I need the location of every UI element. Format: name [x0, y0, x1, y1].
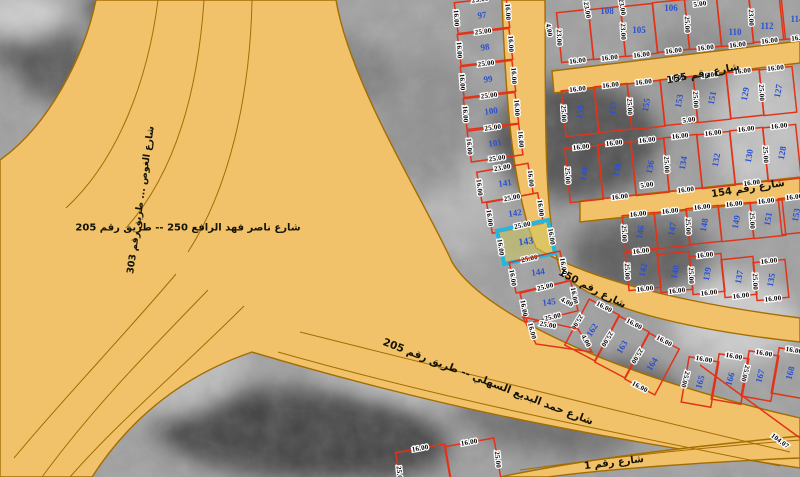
dimension-label: 25.00 [662, 156, 671, 173]
dimension-label: 23.00 [619, 23, 628, 40]
dimension-label: 23.00 [747, 9, 756, 26]
dimension-label: 25.00 [625, 98, 634, 115]
parcel-number: 153 [790, 207, 800, 223]
dimension-label: 25.00 [395, 466, 405, 477]
parcel-number: 142 [508, 207, 523, 219]
dimension-label: 25.00 [620, 225, 629, 242]
parcel-number: 145 [542, 296, 557, 308]
dimension-label: 23.00 [555, 29, 564, 46]
dimension-label: 25.00 [559, 105, 568, 122]
dimension-label: 25.00 [751, 273, 760, 290]
map-canvas[interactable]: 9725.0016.0016.009825.0016.0016.009925.0… [0, 0, 800, 477]
parcel-number: 141 [498, 177, 513, 189]
dimension-label: 25.00 [748, 212, 757, 229]
dimension-label: 25.00 [683, 16, 692, 33]
dimension-label: 25.00 [757, 84, 766, 101]
parcel-number: 144 [531, 266, 546, 278]
dimension-label: 16.00 [503, 3, 512, 20]
dimension-label: 16.00 [455, 42, 464, 59]
parcel-number: 100 [484, 105, 499, 117]
dimension-label: 25.00 [691, 91, 700, 108]
dimension-label: 16.00 [785, 192, 800, 202]
parcel-number: 105 [632, 25, 646, 35]
dimension-label: 16.00 [458, 74, 467, 91]
dimension-label: 25.00 [684, 218, 693, 235]
dimension-label: 25.00 [687, 267, 696, 284]
street-label: شارع ناصر فهد الرافع 250 -- طريق رقم 205 [75, 223, 300, 234]
dimension-label: 16.00 [791, 33, 800, 43]
dimension-label: 25.00 [623, 263, 632, 280]
parcel-number: 101 [488, 137, 503, 149]
parcel-number: 106 [664, 3, 678, 13]
dimension-label: 16.00 [461, 106, 470, 123]
dimension-label: 16.00 [516, 131, 525, 149]
dimension-label: 16.00 [452, 10, 461, 27]
dimension-label: 16.00 [512, 99, 521, 116]
selected-parcel-number: 143 [518, 236, 534, 249]
dimension-label: 16.00 [509, 67, 518, 84]
parcel-number: 108 [600, 6, 614, 16]
parcel-number: 114 [790, 14, 800, 24]
dimension-label: 16.00 [506, 35, 515, 52]
parcel-number: 110 [728, 27, 742, 37]
parcel-number: 112 [760, 21, 774, 31]
dimension-label: 16.00 [465, 138, 474, 156]
dimension-label: 25.00 [761, 146, 770, 163]
gis-map[interactable]: 9725.0016.0016.009825.0016.0016.009925.0… [0, 0, 800, 477]
dimension-label: 25.00 [563, 167, 572, 184]
